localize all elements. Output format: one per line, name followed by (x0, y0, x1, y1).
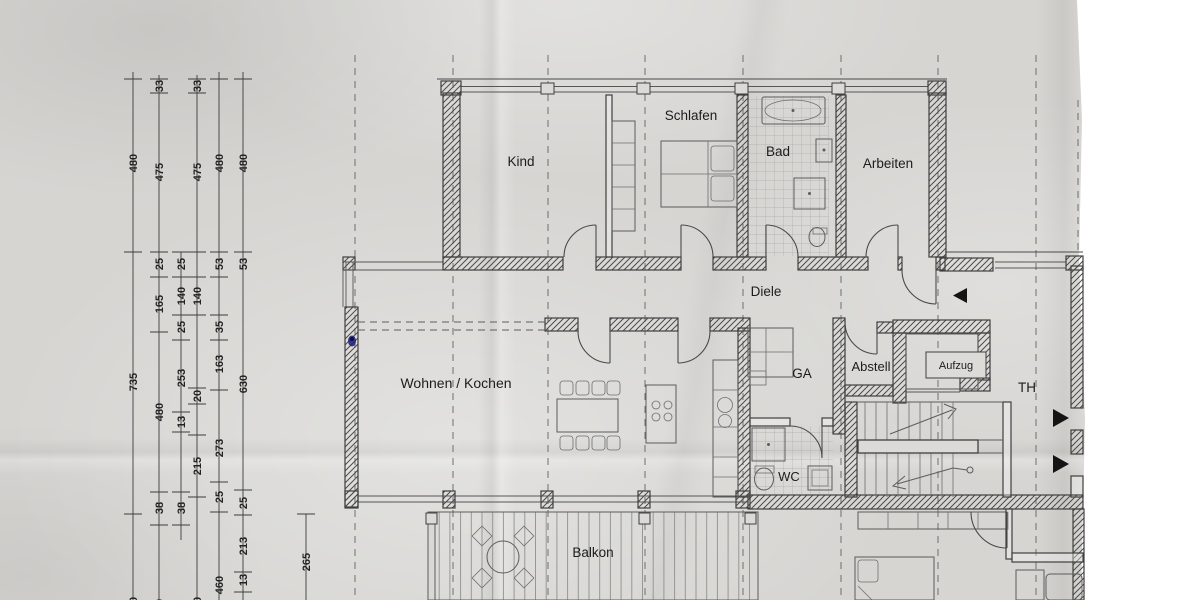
room-label-arbeiten: Arbeiten (863, 156, 913, 171)
dimension-label: 475 (192, 163, 204, 181)
balcony-post (745, 513, 756, 524)
wall-south-band (748, 495, 1083, 509)
dimension-label: 480 (154, 403, 166, 421)
entry-door (902, 270, 936, 304)
dimension-label: 475 (154, 163, 166, 181)
dimension-label: 20 (192, 390, 204, 402)
room-label-balkon: Balkon (572, 545, 613, 560)
room-label-wc: WC (778, 469, 800, 484)
shower (1016, 570, 1044, 600)
room-label-aufzug: Aufzug (939, 360, 973, 372)
chair (592, 381, 605, 395)
wall-right-upper (929, 93, 946, 257)
dimension-label: 253 (176, 369, 188, 387)
balcony (345, 491, 758, 600)
dimension-label: 735 (128, 373, 140, 391)
wall-left-upper (443, 93, 460, 257)
dimension-label: 38 (176, 502, 188, 514)
chair (607, 436, 620, 450)
dimension-label: 25 (176, 258, 188, 270)
chair (576, 381, 589, 395)
sink-basin (719, 415, 732, 428)
dimension-label: 273 (214, 439, 226, 457)
balcony-post (426, 513, 437, 524)
lower-apartment (855, 509, 1083, 600)
dimension-label: 140 (192, 287, 204, 305)
dimension-label: 460 (214, 576, 226, 594)
dimension-label: 13 (176, 416, 188, 428)
dimension-label: 480 (214, 154, 226, 172)
staircase (845, 402, 1011, 497)
wardrobe (612, 121, 635, 231)
living-room-north-wall (358, 318, 750, 331)
dimension-chains: 4807354803347525165480384102514025253133… (124, 72, 315, 600)
room-label-diele: Diele (751, 284, 782, 299)
balcony-post (639, 513, 650, 524)
chair (560, 436, 573, 450)
photo-of-floor-plan: 4807354803347525165480384102514025253133… (0, 0, 1200, 600)
cooktop-burner (652, 413, 660, 421)
room-label-wohnen: Wohnen / Kochen (400, 375, 511, 391)
sink-basin (718, 398, 733, 413)
dimension-label: 33 (192, 80, 204, 92)
wall-right-edge (1071, 266, 1083, 408)
room-label-bad: Bad (766, 144, 790, 159)
dimension-label: 38 (154, 502, 166, 514)
dimension-label: 480 (238, 154, 250, 172)
dimension-label: 25 (176, 321, 188, 333)
pillow (711, 146, 734, 171)
exit-arrow-icons (1053, 409, 1069, 473)
cooktop-burner (652, 401, 660, 409)
chair (576, 436, 589, 450)
ga-closet (748, 328, 793, 385)
stair-landing (858, 440, 978, 453)
dimension-label: 163 (214, 355, 226, 373)
chair (607, 381, 620, 395)
dimension-label: 53 (214, 258, 226, 270)
room-label-schlafen: Schlafen (665, 108, 718, 123)
room-label-abstell: Abstell (851, 359, 890, 374)
dimension-label: 140 (176, 287, 188, 305)
entry-arrow-icon (953, 288, 967, 303)
bed (855, 557, 934, 600)
room-label-kind: Kind (507, 154, 534, 169)
kitchen-counter (713, 360, 738, 497)
dimension-label: 25 (154, 258, 166, 270)
dimension-label: 213 (238, 537, 250, 555)
room-label-th: TH (1018, 380, 1036, 395)
dimension-label: 35 (214, 321, 226, 333)
pillow (858, 560, 878, 582)
chair (592, 436, 605, 450)
room-label-ga: GA (792, 366, 812, 381)
dimension-label: 25 (238, 497, 250, 509)
blue-ink-mark (348, 336, 356, 347)
dimension-label: 480 (128, 154, 140, 172)
chair (560, 381, 573, 395)
cooktop-burner (664, 401, 672, 409)
kitchen-island (646, 385, 676, 443)
floor-plan-drawing: 4807354803347525165480384102514025253133… (0, 0, 1200, 600)
dining-table (557, 381, 620, 450)
dimension-label: 215 (192, 457, 204, 475)
dimension-label: 53 (238, 258, 250, 270)
dimension-label: 265 (301, 553, 313, 571)
dimension-label: 25 (214, 491, 226, 503)
window-pillar (735, 83, 748, 94)
pillow (711, 176, 734, 201)
hall-north-wall (443, 257, 945, 270)
window-pillar (541, 83, 554, 94)
kitchen-furniture (646, 360, 738, 497)
window-pillar (832, 83, 845, 94)
dimension-label: 13 (238, 574, 250, 586)
cooktop-burner (664, 413, 672, 421)
bedroom-furniture (612, 121, 737, 231)
window-pillar (637, 83, 650, 94)
closet-row (858, 512, 1008, 529)
dimension-label: 165 (154, 295, 166, 313)
dimension-label: 630 (238, 375, 250, 393)
dimension-label: 33 (154, 80, 166, 92)
